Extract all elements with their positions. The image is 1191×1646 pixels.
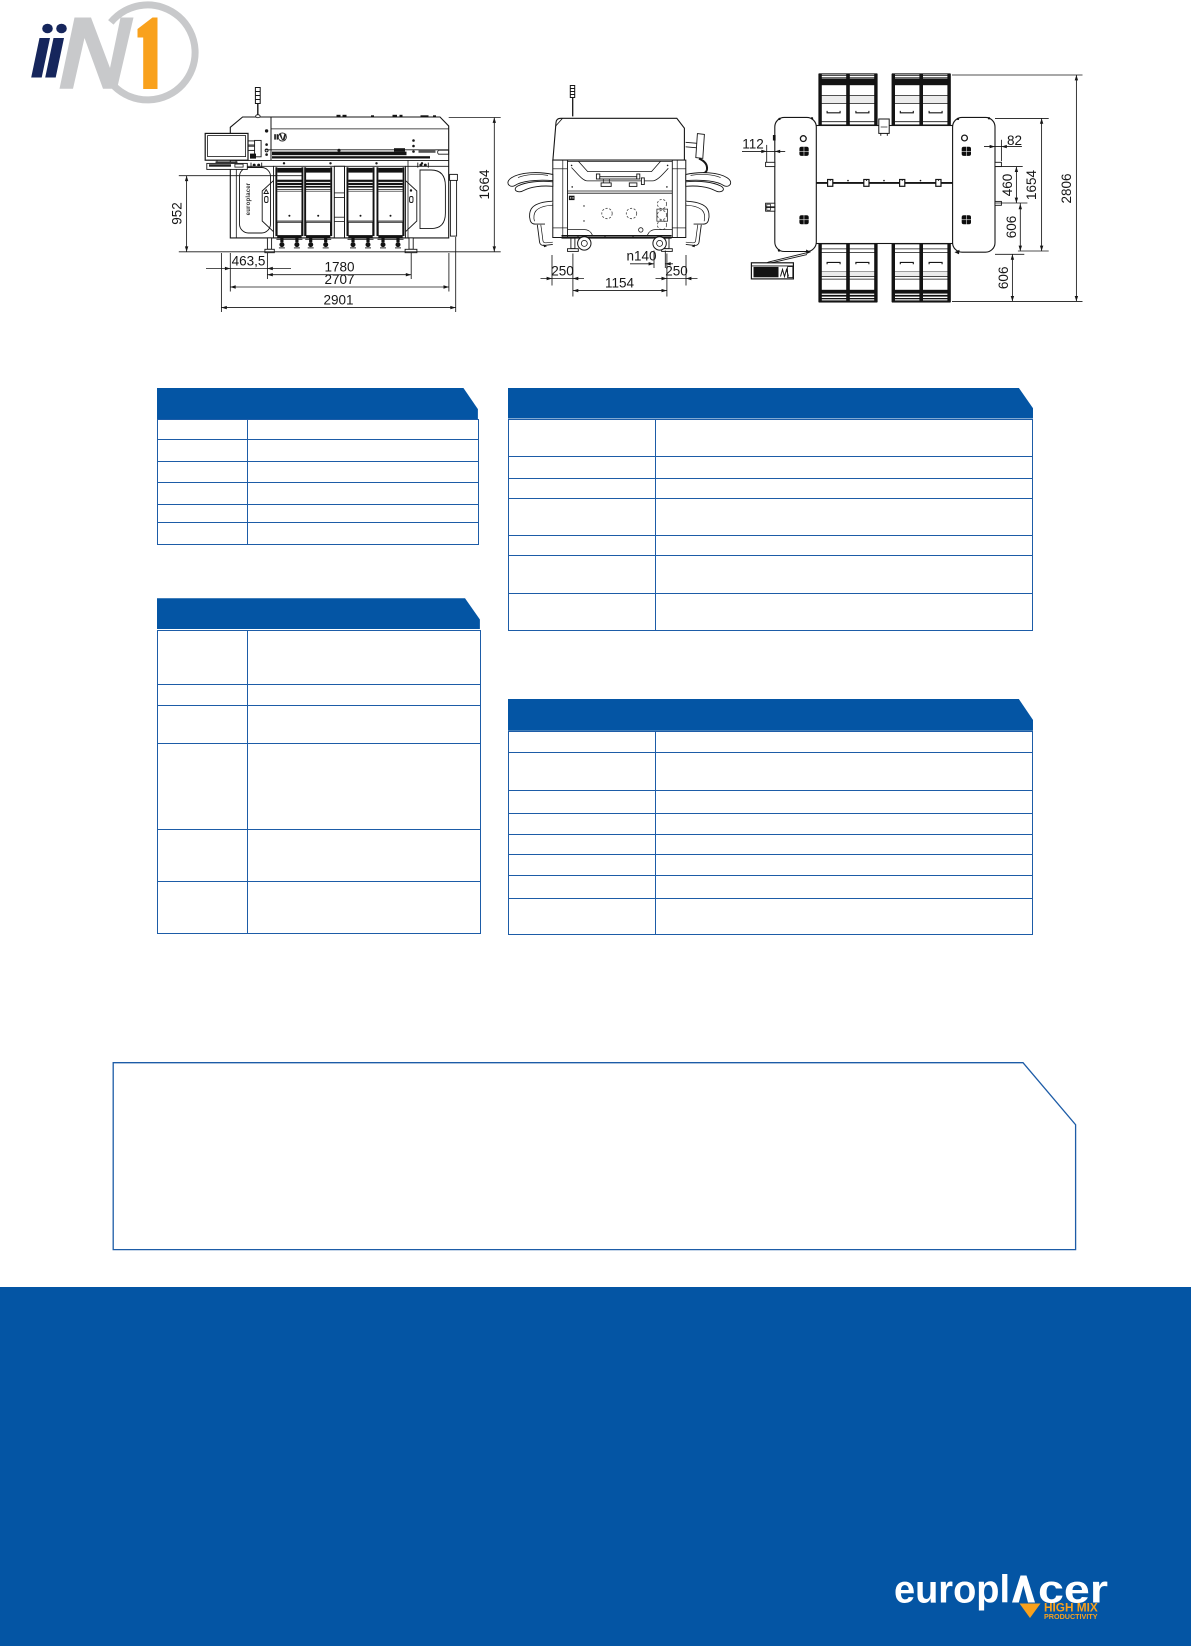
svg-text:250: 250 <box>551 263 574 278</box>
svg-text:2806: 2806 <box>1059 173 1074 203</box>
svg-text:2901: 2901 <box>323 293 353 308</box>
svg-text:1654: 1654 <box>1024 169 1039 200</box>
svg-text:n140: n140 <box>626 249 656 264</box>
svg-text:1154: 1154 <box>605 276 635 291</box>
svg-text:82: 82 <box>1007 133 1022 148</box>
svg-text:1664: 1664 <box>477 169 492 200</box>
svg-text:606: 606 <box>1004 216 1019 239</box>
svg-text:606: 606 <box>996 267 1011 290</box>
svg-text:952: 952 <box>170 202 185 225</box>
svg-text:europl: europl <box>894 1569 1010 1612</box>
svg-text:2707: 2707 <box>324 272 354 287</box>
svg-text:112: 112 <box>742 136 764 151</box>
svg-text:PRODUCTIVITY: PRODUCTIVITY <box>1044 1612 1098 1621</box>
svg-text:250: 250 <box>665 263 688 278</box>
svg-text:460: 460 <box>1000 174 1015 197</box>
svg-text:europlacer: europlacer <box>246 182 252 215</box>
svg-text:463,5: 463,5 <box>232 253 266 268</box>
